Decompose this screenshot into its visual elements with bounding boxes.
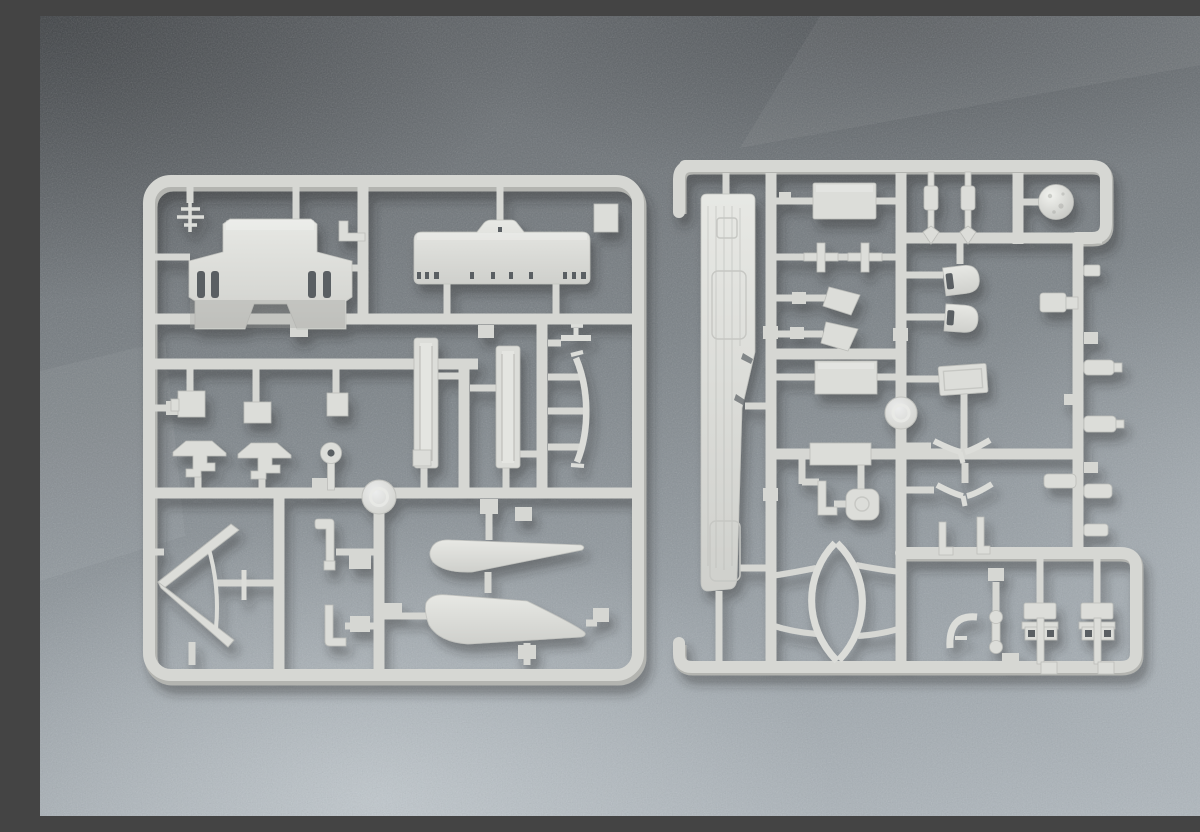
runner-tab — [763, 326, 778, 339]
runner-tab — [779, 192, 791, 203]
runner-tab — [790, 327, 804, 339]
rail-section-part — [413, 338, 438, 468]
barrel-peg — [1084, 416, 1116, 432]
sprue-scene — [40, 16, 1200, 816]
j-hook-foot — [324, 561, 335, 570]
barrel-peg — [1084, 360, 1114, 375]
barrel-peg — [1044, 474, 1076, 488]
fitting-box-part — [327, 393, 348, 416]
photo: Two light-grey injection-moulded plastic… — [40, 16, 1200, 816]
window-slit — [197, 271, 205, 298]
runner-tab — [384, 603, 402, 618]
box-highlight — [816, 185, 873, 192]
equipment-box-part — [810, 443, 871, 465]
runner-tab — [515, 507, 532, 521]
fitting-box-flange — [171, 399, 179, 411]
barrel-peg-tip — [1114, 363, 1122, 372]
runner-tab — [478, 325, 494, 338]
runner-tab — [1084, 462, 1098, 473]
runner-tab — [518, 645, 536, 659]
runner-tab — [349, 549, 371, 569]
barrel-peg — [1066, 297, 1078, 309]
runner-tab — [1064, 394, 1078, 405]
ships-boat-part — [944, 304, 979, 333]
barrel-peg — [1084, 524, 1108, 536]
sprue-gate — [362, 480, 396, 514]
runner-tab — [763, 488, 778, 501]
barrel-peg — [1084, 265, 1100, 276]
barrel-peg — [1084, 484, 1112, 498]
rounded-knob-part — [846, 489, 879, 520]
barrel-peg — [1040, 293, 1066, 312]
corner-tab-part — [594, 204, 618, 232]
window-slit — [323, 271, 331, 298]
fitting-box-part — [244, 402, 271, 423]
fitting-box-part — [178, 391, 205, 417]
runner-tab — [792, 292, 806, 304]
metal-speckle-texture — [40, 16, 1200, 816]
sprue-gate — [885, 397, 917, 429]
runner-tab — [480, 499, 498, 514]
runner-tab — [1084, 332, 1098, 344]
window-slit — [308, 271, 316, 298]
barrel-peg-tip — [1116, 420, 1124, 428]
runner-tab — [1002, 653, 1019, 666]
window-slit — [211, 271, 219, 298]
rail-section-part — [496, 346, 520, 468]
runner-tab — [893, 328, 908, 341]
runner-tab — [593, 608, 609, 622]
runner-tab — [350, 616, 370, 632]
runner-tab — [988, 568, 1004, 581]
base-plate-part — [938, 363, 988, 395]
radar-dome-part — [1039, 185, 1074, 220]
